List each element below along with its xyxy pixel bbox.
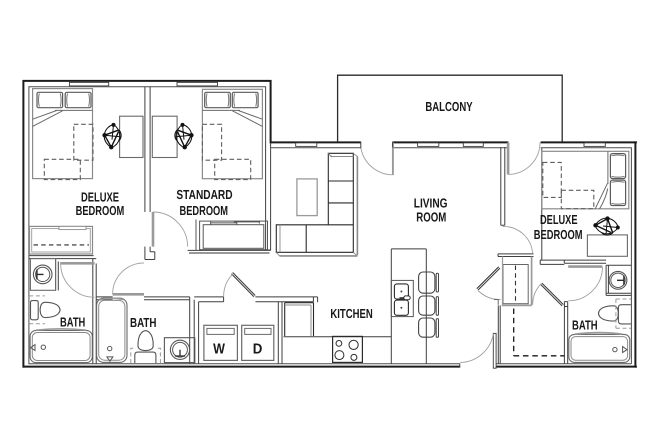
svg-text:BEDROOM: BEDROOM (76, 203, 125, 218)
svg-text:LIVING: LIVING (414, 196, 448, 211)
svg-text:DELUXE: DELUXE (540, 212, 578, 227)
svg-text:ROOM: ROOM (416, 209, 446, 224)
svg-text:BEDROOM: BEDROOM (534, 227, 583, 242)
svg-text:D: D (253, 341, 263, 357)
svg-text:BATH: BATH (60, 314, 85, 329)
svg-text:BALCONY: BALCONY (425, 99, 472, 114)
svg-text:W: W (213, 341, 225, 357)
svg-text:STANDARD: STANDARD (176, 187, 232, 202)
svg-text:BATH: BATH (130, 315, 157, 330)
svg-text:KITCHEN: KITCHEN (330, 306, 372, 321)
svg-text:BEDROOM: BEDROOM (180, 203, 229, 218)
svg-text:BATH: BATH (572, 317, 598, 332)
